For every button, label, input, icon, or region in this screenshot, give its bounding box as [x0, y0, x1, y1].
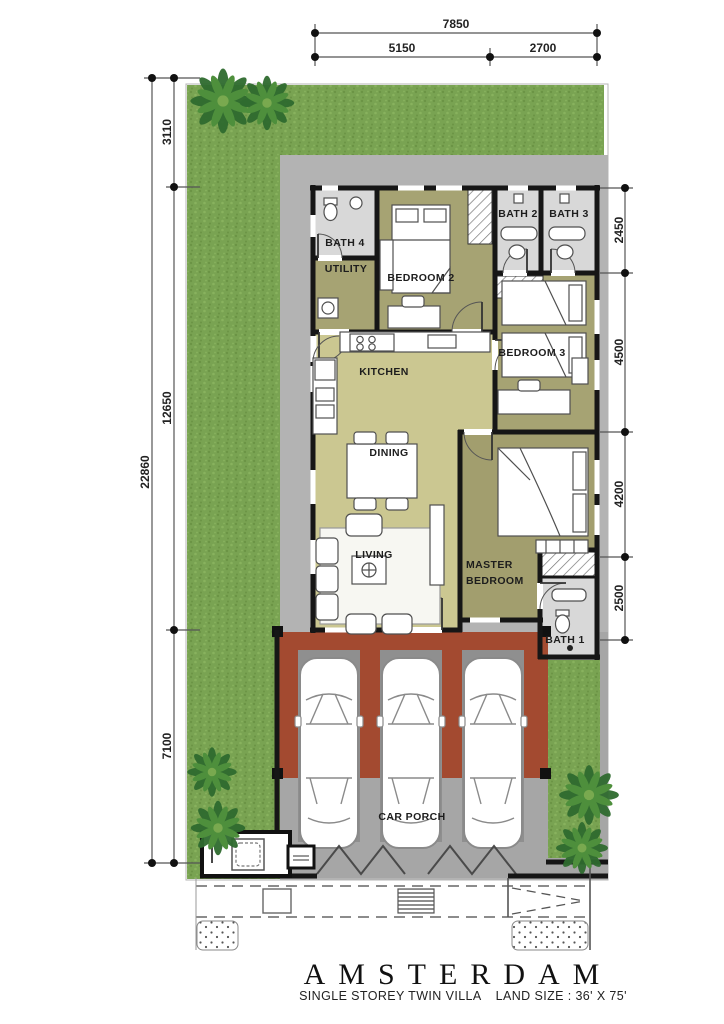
road-verge [197, 921, 238, 950]
plan-subtitle-land: LAND SIZE : 36' X 75' [496, 989, 627, 1003]
label-carporch: CAR PORCH [378, 811, 445, 823]
drain-grate [398, 889, 434, 913]
label-kitchen: KITCHEN [359, 366, 408, 378]
dim-left-1: 3110 [160, 119, 174, 145]
title-block: AMSTERDAM SINGLE STOREY TWIN VILLALAND S… [299, 958, 627, 1003]
dim-left-3: 7100 [160, 732, 174, 759]
label-bath2: BATH 2 [498, 208, 538, 220]
master-wardrobe [540, 550, 597, 577]
washer-icon [318, 298, 338, 318]
dim-top-right: 2700 [530, 41, 557, 55]
dim-right-1: 2450 [612, 216, 626, 243]
dim-top-left: 5150 [389, 41, 416, 55]
sofa [316, 566, 338, 592]
armchair [346, 614, 376, 634]
dim-top-total: 7850 [443, 17, 470, 31]
palm-tree-icon [191, 801, 246, 856]
fridge-icon [315, 360, 335, 380]
desk [388, 306, 440, 328]
dim-left-2: 12650 [160, 391, 174, 425]
label-utility: UTILITY [325, 263, 367, 275]
plan-title: AMSTERDAM [304, 958, 613, 991]
label-bedroom3: BEDROOM 3 [498, 347, 565, 359]
vanity [552, 589, 586, 601]
palm-tree-icon [559, 765, 619, 825]
palm-tree-icon [187, 747, 236, 796]
manhole [263, 889, 291, 913]
flow-arrow-icon [512, 888, 584, 914]
sofa [316, 538, 338, 564]
plan-subtitle: SINGLE STOREY TWIN VILLALAND SIZE : 36' … [299, 989, 627, 1003]
dim-left-total: 22860 [138, 455, 152, 489]
dim-right-4: 2500 [612, 584, 626, 611]
meter-box [288, 846, 314, 868]
porch-post [540, 768, 551, 779]
vanity [501, 227, 537, 240]
label-dining: DINING [369, 447, 408, 459]
plan-subtitle-type: SINGLE STOREY TWIN VILLA [299, 989, 482, 1003]
sink-icon [509, 245, 525, 259]
sofa [316, 594, 338, 620]
palm-tree-icon [556, 822, 608, 874]
road-verge [512, 921, 588, 950]
sink-icon [350, 197, 362, 209]
desk [498, 390, 570, 414]
armchair [346, 514, 382, 536]
dim-right-3: 4200 [612, 480, 626, 507]
label-bedroom2: BEDROOM 2 [387, 272, 454, 284]
bed-bench [536, 540, 588, 553]
car-porch [272, 626, 551, 874]
label-bath4: BATH 4 [325, 237, 365, 249]
vanity [549, 227, 585, 240]
floor-plan-page: 7850 5150 2700 22860 3110 12650 7100 245… [0, 0, 724, 1024]
car-icon [459, 658, 527, 848]
palm-tree-icon [240, 76, 295, 131]
armchair [382, 614, 412, 634]
toilet-icon [324, 204, 337, 221]
sink-icon [557, 245, 573, 259]
label-master-line2: BEDROOM [466, 575, 524, 587]
label-bath1: BATH 1 [545, 634, 585, 646]
floor-plan-drawing: 7850 5150 2700 22860 3110 12650 7100 245… [0, 0, 724, 1024]
toilet-icon [556, 615, 570, 633]
label-living: LIVING [355, 549, 392, 561]
label-master-line1: MASTER [466, 559, 513, 571]
bedroom2-wardrobe [468, 190, 492, 244]
dim-right-2: 4500 [612, 338, 626, 365]
tv-console [430, 505, 444, 585]
car-icon [295, 658, 363, 848]
label-bath3: BATH 3 [549, 208, 589, 220]
